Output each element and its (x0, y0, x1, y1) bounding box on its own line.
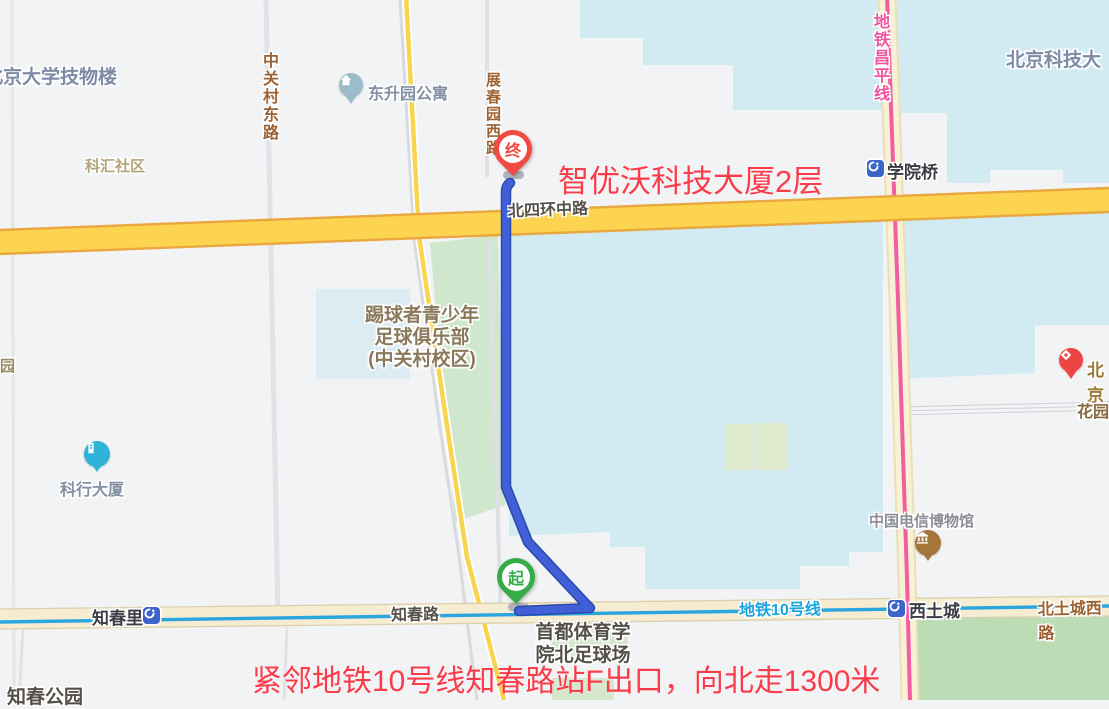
map-tiles (0, 0, 1109, 700)
house-icon (339, 73, 353, 87)
transit-label-changping-line: 地铁昌平线 (867, 13, 891, 103)
museum-pin[interactable] (915, 530, 941, 556)
diamond-icon (1059, 348, 1073, 362)
end-pin-label: 终 (505, 137, 521, 161)
station-label-xueyuanqiao: 学院桥 (887, 158, 938, 183)
route-tip-annotation: 紧邻地铁10号线知春路站F出口，向北走1300米 (252, 656, 880, 700)
poi-label-soccer-club: 踢球者青少年 足球俱乐部 (中关村校区) (337, 305, 507, 371)
poi-label-yuan: 园 (0, 355, 15, 376)
road-label-beitucheng-west: 北土城西路 (1038, 594, 1109, 643)
poi-label-huayuan: 花园 (1077, 398, 1109, 422)
map-canvas[interactable]: 北京大学技物楼 科汇社区 中关村东路 东升园公寓 展春园西路 北四环中路 学院桥… (0, 0, 1109, 700)
subway-logo-icon[interactable] (888, 600, 905, 617)
museum-icon (915, 530, 930, 545)
poi-label-ustb: 北京科技大 (1006, 45, 1101, 72)
poi-label-pku-physics: 北京大学技物楼 (0, 62, 117, 89)
building-pin[interactable] (84, 441, 110, 467)
road-label-zhichun-road: 知春路 (391, 601, 439, 626)
poi-label-kehang-tower: 科行大厦 (60, 476, 124, 500)
subway-logo-icon[interactable] (143, 607, 160, 624)
transit-label-line10: 地铁10号线 (739, 595, 821, 620)
subway-logo-icon[interactable] (867, 160, 884, 177)
road-label-zhongguancun-east: 中关村东路 (256, 52, 280, 142)
scenic-pin[interactable] (1059, 348, 1083, 372)
destination-annotation: 智优沃科技大厦2层 (558, 156, 823, 201)
station-label-zhichunli: 知春里 (92, 604, 143, 629)
start-pin-label: 起 (508, 565, 524, 589)
poi-label-dongshengyuan: 东升园公寓 (368, 80, 448, 104)
station-label-xitucheng: 西土城 (909, 597, 960, 622)
poi-label-zhichun-park: 知春公园 (7, 686, 83, 709)
apartment-pin[interactable] (339, 73, 363, 97)
poi-label-telecom-museum: 中国电信博物馆 (869, 510, 974, 531)
poi-label-kehui-community: 科汇社区 (85, 155, 145, 176)
building-icon (84, 441, 98, 455)
